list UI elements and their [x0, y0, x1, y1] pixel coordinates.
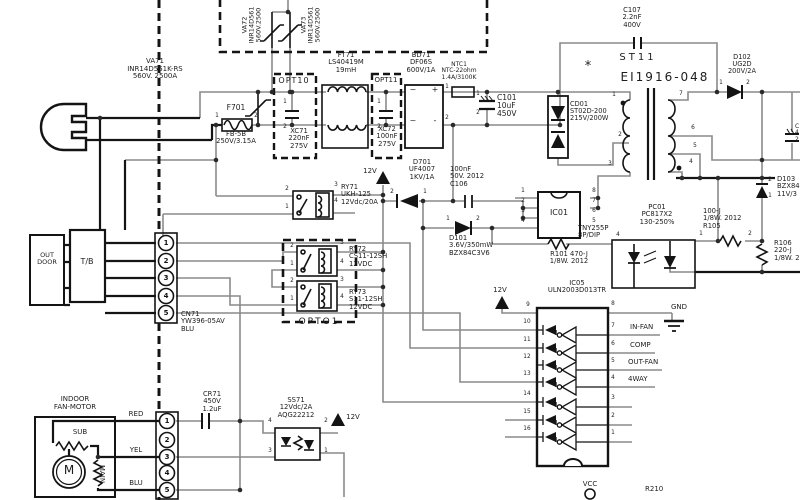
fan-motor-connector-pin: 5 — [165, 486, 170, 494]
va71-label: VA71 INR14D561K-RS 560V. 2500A — [127, 58, 183, 81]
pin-number: 4 — [340, 294, 344, 300]
pin-number: 2 — [377, 124, 381, 130]
rail-12v-b: 12V — [493, 287, 507, 295]
d102-label: D102 UG2D 200V/2A — [728, 54, 756, 75]
pin-number: 12 — [523, 354, 530, 360]
pin-number: 1 — [612, 92, 616, 98]
pin-number: 1 — [521, 188, 525, 194]
arrow-12v-a — [376, 171, 390, 184]
pin-number: 15 — [523, 409, 530, 415]
fan-motor-connector-pin: 4 — [165, 469, 170, 477]
gnd-label: GND — [671, 304, 687, 312]
d102-diode — [727, 85, 742, 99]
tb-label: T/B — [80, 258, 93, 267]
opto1-label: OPTO1 — [299, 318, 340, 328]
d701-label: D701 UF4007 1KV/1A — [409, 159, 435, 181]
pin-number: 1 — [611, 430, 615, 436]
pin-number: 1 — [768, 193, 772, 199]
pin-number: 4 — [616, 232, 620, 238]
ac-plug-icon — [41, 104, 86, 150]
pin-number: 5 — [592, 218, 596, 224]
ft71-label: FT71 LS40419M 19mH — [328, 52, 364, 74]
c107-label: C107 2.2nF 400V — [622, 7, 641, 29]
pin-number: 6 — [592, 208, 596, 214]
cn71-label: CN71 YW396-05AV BLU — [181, 311, 225, 333]
pin-number: 2 — [445, 115, 449, 121]
c101-capacitor — [479, 101, 495, 109]
motor-m: M — [64, 464, 74, 477]
cn71-connector-pin: 5 — [164, 309, 169, 317]
out-out-fan: OUT-FAN — [628, 359, 658, 367]
st11-core: EI1916-048 — [621, 71, 710, 84]
wire-red-label: RED — [129, 411, 144, 419]
pc01-label: PC01 PC817X2 130-250% — [640, 204, 675, 226]
ic01-part: TNY255P 8P/DIP — [578, 225, 608, 240]
pin-number: 2 — [618, 132, 622, 138]
pin-number: 3 — [608, 161, 612, 167]
sub-winding — [56, 442, 88, 450]
c101-label: C101 10uF 450V — [497, 94, 517, 118]
edge-cap-label-cut: C 4 2 — [795, 124, 799, 143]
pin-number: 13 — [523, 371, 530, 377]
c106-capacitor — [465, 195, 472, 208]
d103-label: D103 BZX84 11V/3 — [777, 176, 800, 198]
r105-resistor — [720, 236, 741, 246]
pin-number: 1 — [719, 80, 723, 86]
pin-number: 2 — [285, 186, 289, 192]
f701-value: FB-5B 250V/3.15A — [216, 131, 256, 146]
pin-number: 3 — [340, 240, 344, 246]
cn71-connector-pin: 1 — [164, 239, 169, 247]
pin-number: 2 — [748, 231, 752, 237]
bd71-ac1: ~ — [410, 86, 417, 95]
pin-number: 2 — [476, 110, 480, 116]
va73-label: VA73 INR14D561 560V.2500 — [300, 7, 321, 44]
pin-number: 9 — [526, 302, 530, 308]
rail-12v-a: 12V — [363, 168, 377, 176]
pin-number: 2 — [768, 177, 772, 183]
wire-blu-label: BLU — [129, 480, 142, 488]
pin-number: 3 — [340, 277, 344, 283]
pin-number: 1 — [290, 296, 294, 302]
c106-label: 100nF 50V. 2012 C106 — [450, 166, 484, 188]
pin-number: 2 — [611, 413, 615, 419]
pin-number: 4 — [521, 218, 525, 224]
ry73-relay — [297, 281, 337, 311]
xc71-label: XC71 220nF 275V — [288, 128, 309, 150]
polarity-star: * — [585, 60, 592, 74]
pin-number: 2 — [521, 198, 525, 204]
pin-number: 7 — [592, 198, 596, 204]
cd01-label: CD01 ST02D-200 215V/200W — [570, 101, 608, 122]
rail-12v-c: 12V — [346, 414, 360, 422]
pin-number: 4 — [689, 159, 693, 165]
arrow-12v-b — [495, 296, 509, 309]
ntc1-label: NTC1 NTC-22ohm 1.4A/3100K — [441, 62, 476, 81]
r106-label: R106 220-J 1/8W. 2 — [774, 240, 800, 262]
r210-label: R210 — [645, 486, 663, 494]
arrow-12v-c — [331, 413, 345, 426]
xc72-capacitor — [379, 111, 393, 118]
outdoor-label: OUT DOOR — [37, 252, 57, 266]
va73-varistor — [278, 12, 302, 48]
pin-number: 1 — [445, 84, 449, 90]
r101-label: R101 470-J 1/8W. 2012 — [550, 251, 589, 266]
pin-number: 1 — [423, 189, 427, 195]
va72-varistor — [260, 12, 284, 48]
pin-number: 16 — [523, 426, 530, 432]
pin-number: 7 — [611, 323, 615, 329]
indoor-fan-label: INDOOR FAN-MOTOR — [54, 396, 96, 411]
pin-number: 1 — [476, 91, 480, 97]
schematic-page: VA72 INR14D561 560V.2500VA73 INR14D561 5… — [0, 0, 800, 500]
fan-motor-connector-pin: 1 — [165, 417, 170, 425]
pin-number: 2 — [290, 278, 294, 284]
pin-number: 6 — [691, 125, 695, 131]
d101-diode — [455, 221, 471, 235]
pin-number: 4 — [268, 418, 272, 424]
pin-number: 3 — [268, 448, 272, 454]
r101-resistor — [548, 239, 569, 249]
ft71-choke — [322, 85, 368, 148]
pin-number: 2 — [746, 80, 750, 86]
r106-resistor — [757, 244, 767, 265]
c107-capacitor — [634, 37, 641, 49]
f701-label: F701 — [227, 104, 246, 112]
d101-label: D101 3.6V/350mW BZX84C3V6 — [449, 235, 493, 257]
wire-yel-label: YEL — [130, 447, 143, 455]
pin-number: 2 — [283, 124, 287, 130]
pin-number: 2 — [290, 243, 294, 249]
ground-icon-bars — [668, 326, 680, 331]
opt10-label: OPT10 — [278, 77, 309, 86]
bd71-minus: - — [434, 117, 437, 126]
st11-label: ST11 — [619, 53, 656, 64]
out-in-fan: IN-FAN — [630, 324, 653, 332]
pin-number: 1 — [283, 99, 287, 105]
xc71-capacitor — [285, 111, 299, 118]
bd71-ac2: ~ — [410, 117, 417, 126]
opt11-label: OPT11 — [375, 77, 398, 85]
pin-number: 4 — [611, 375, 615, 381]
outdoor-box — [30, 235, 64, 305]
pin-number: 8 — [592, 188, 596, 194]
out-comp: COMP — [630, 342, 651, 350]
pin-number: 3 — [611, 395, 615, 401]
pin-number: 1 — [285, 204, 289, 210]
va71-varistor — [245, 92, 271, 125]
fan-motor-connector-pin: 2 — [165, 436, 170, 444]
ss71-label: SS71 12Vdc/2A AQG22212 — [278, 397, 315, 419]
cr71-capacitor — [202, 413, 209, 429]
pin-number: 2 — [476, 216, 480, 222]
ry72-relay — [297, 246, 337, 276]
pin-number: 3 — [521, 208, 525, 214]
d103-zener — [756, 186, 768, 198]
pin-number: 7 — [679, 91, 683, 97]
ry71-relay — [293, 191, 333, 219]
ry73-label: RY73 S11-12SH 12VDC — [349, 289, 383, 311]
bd71-plus: + — [432, 86, 439, 95]
d701-diode — [400, 194, 418, 208]
cr71-label: CR71 450V 1.2uF — [202, 391, 221, 413]
out-4way: 4WAY — [628, 376, 648, 384]
pin-number: 1 — [290, 261, 294, 267]
fan-motor-connector-pin: 3 — [165, 453, 170, 461]
pin-number: 1 — [324, 448, 328, 454]
pin-number: 1 — [215, 113, 219, 119]
pin-number: 2 — [254, 113, 258, 119]
sub-winding-label: SUB — [73, 429, 87, 437]
pin-number: 11 — [523, 337, 530, 343]
va72-label: VA72 INR14D561 560V.2500 — [241, 7, 262, 44]
pin-number: 6 — [611, 341, 615, 347]
ss71-ssr — [275, 428, 320, 460]
pin-number: 10 — [523, 319, 530, 325]
pin-number: 3 — [334, 182, 338, 188]
ic01-name: IC01 — [550, 209, 568, 218]
pin-number: 14 — [523, 391, 530, 397]
cd01-surge-absorber — [548, 96, 568, 158]
pin-number: 5 — [693, 143, 697, 149]
pin-number: 1 — [699, 231, 703, 237]
st11-transformer — [621, 88, 682, 180]
vcc-node — [585, 489, 595, 499]
pin-number: 1 — [377, 99, 381, 105]
cn71-connector-pin: 4 — [164, 292, 169, 300]
main-winding-label: MAIN — [97, 465, 105, 483]
pin-number: 8 — [611, 301, 615, 307]
pin-number: 2 — [324, 418, 328, 424]
vcc-label: VCC — [583, 481, 598, 489]
r105-label: 100-J 1/8W. 2012 R105 — [703, 208, 742, 230]
ic05-internals — [537, 325, 608, 450]
pin-number: 5 — [611, 358, 615, 364]
ry71-label: RY71 UKH-125 12Vdc/20A — [341, 184, 378, 206]
cn71-connector-pin: 2 — [164, 257, 169, 265]
bd71-label: BD71 DF06S 600V/1A — [407, 52, 436, 74]
pin-number: 1 — [446, 216, 450, 222]
cn71-connector-pin: 3 — [164, 274, 169, 282]
pin-number: 2 — [390, 189, 394, 195]
ry72-label: RY72 CS11-12SH 12VDC — [349, 246, 387, 268]
pc01-optocoupler — [612, 240, 695, 288]
pin-number: 4 — [340, 259, 344, 265]
pin-number: 4 — [334, 198, 338, 204]
ic05-label: IC05 ULN2003D013TR — [548, 280, 606, 295]
